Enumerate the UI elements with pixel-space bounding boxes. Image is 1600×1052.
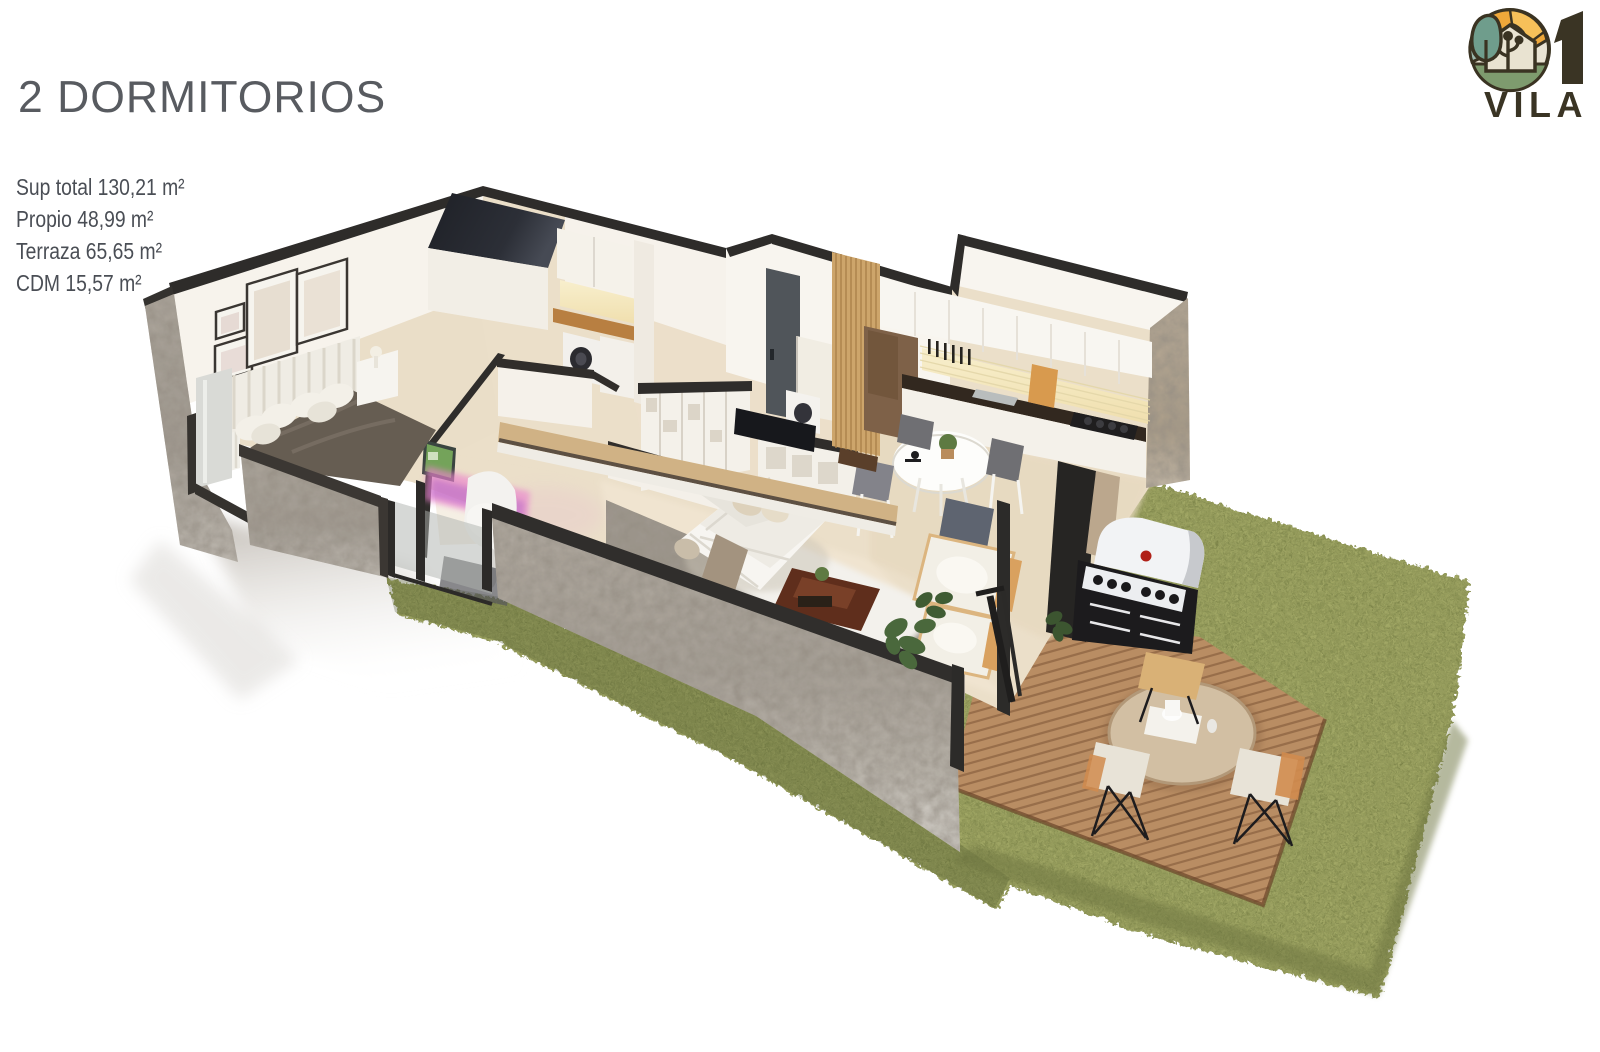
svg-text:VILA: VILA — [1484, 84, 1588, 125]
